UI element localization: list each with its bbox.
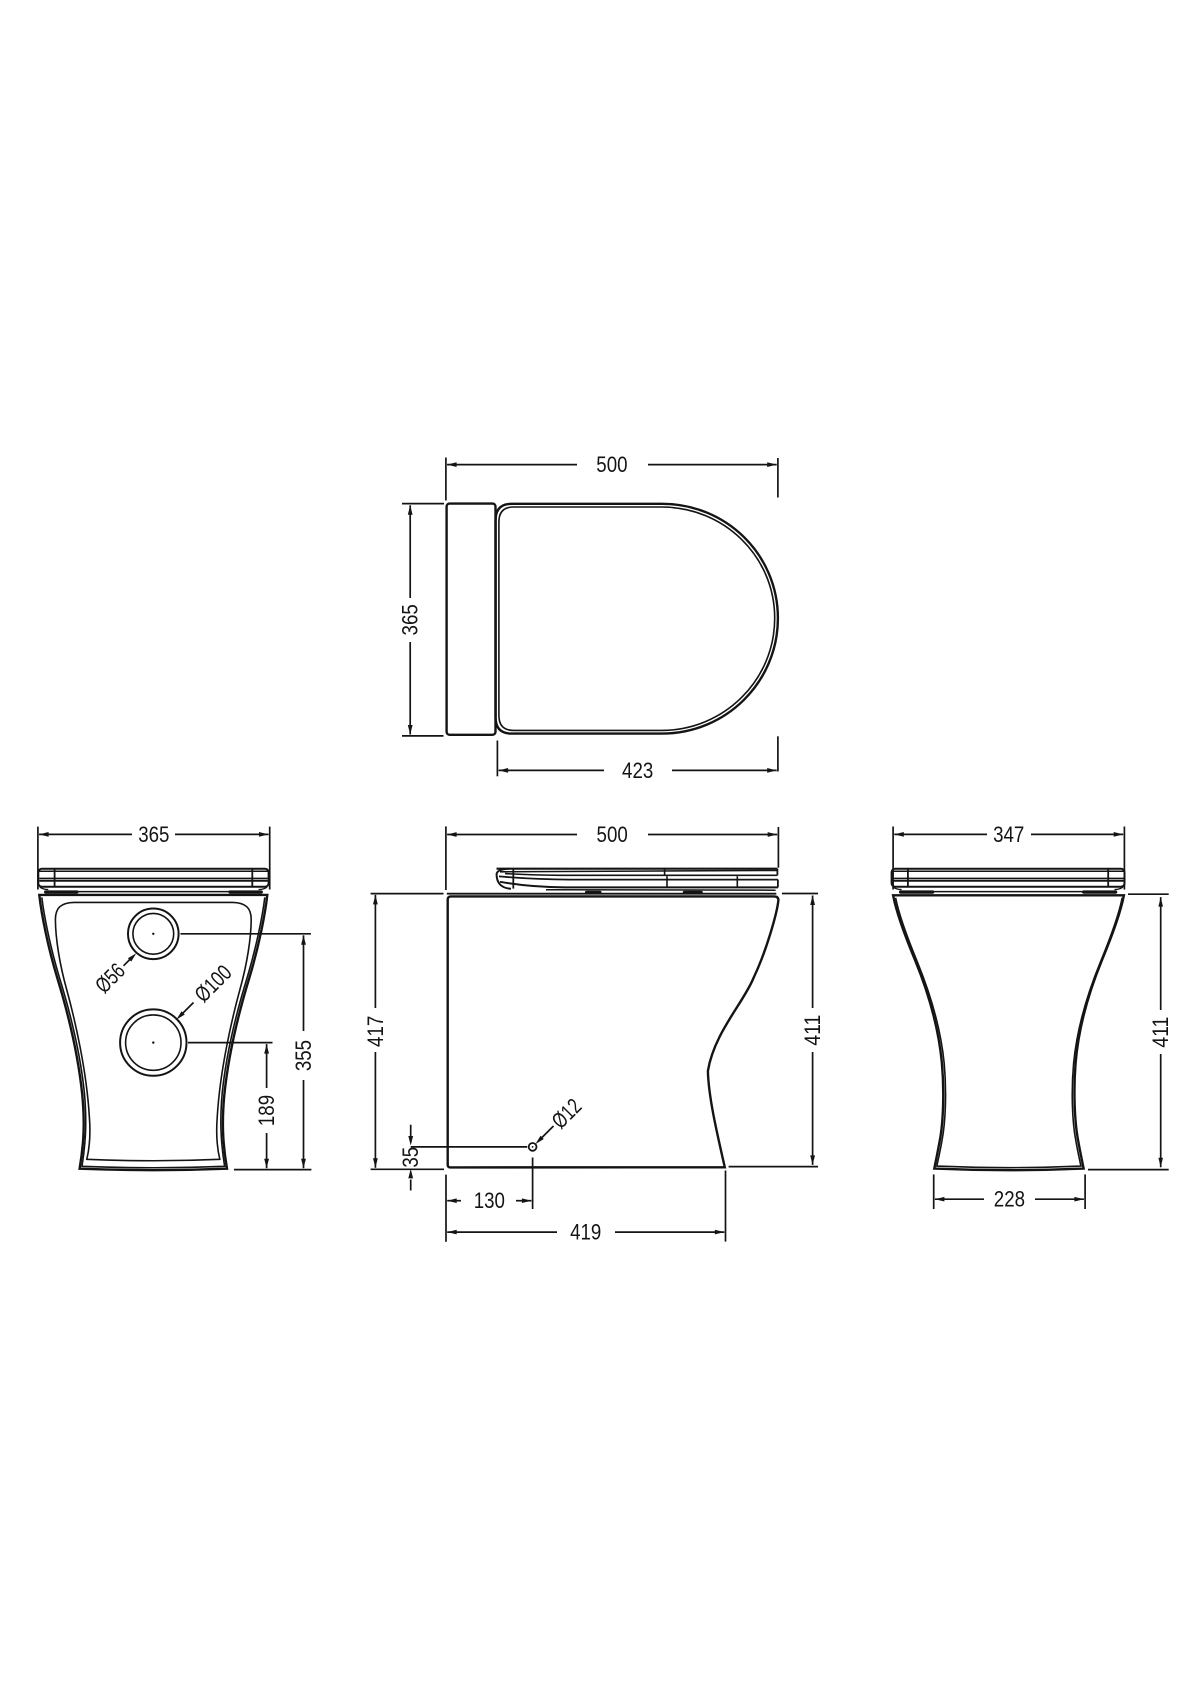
svg-text:411: 411 bbox=[1148, 1017, 1173, 1048]
svg-text:228: 228 bbox=[994, 1187, 1025, 1212]
svg-text:417: 417 bbox=[363, 1016, 388, 1047]
svg-text:Ø56: Ø56 bbox=[90, 958, 130, 998]
svg-text:35: 35 bbox=[398, 1147, 423, 1168]
svg-text:500: 500 bbox=[596, 452, 627, 477]
svg-text:423: 423 bbox=[622, 758, 653, 783]
svg-text:365: 365 bbox=[138, 822, 169, 847]
svg-text:130: 130 bbox=[474, 1188, 505, 1213]
svg-text:189: 189 bbox=[254, 1095, 279, 1126]
svg-text:365: 365 bbox=[398, 604, 423, 635]
svg-text:500: 500 bbox=[597, 822, 628, 847]
svg-text:419: 419 bbox=[570, 1220, 601, 1245]
svg-text:355: 355 bbox=[291, 1040, 316, 1071]
svg-text:411: 411 bbox=[800, 1015, 825, 1046]
svg-text:347: 347 bbox=[993, 822, 1024, 847]
svg-text:Ø100: Ø100 bbox=[189, 960, 236, 1007]
